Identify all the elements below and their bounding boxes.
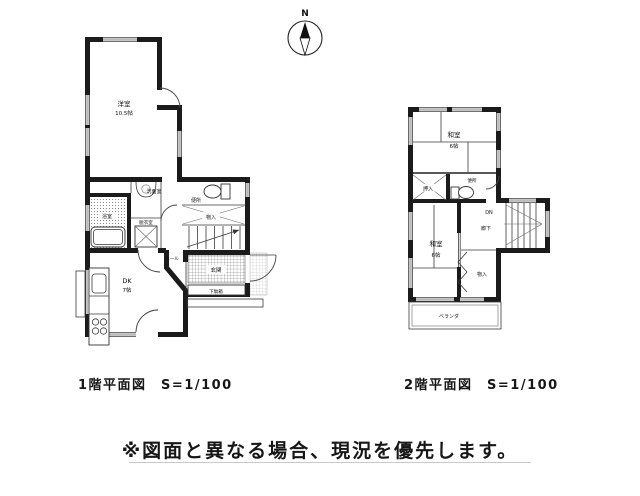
second-floor-plan: 和室 6帖 押入 便所 DN 廊下 和室 6帖 物入 ベランダ	[408, 107, 550, 329]
fixtures-2f	[409, 176, 501, 329]
compass-north-label: N	[301, 9, 309, 19]
room-label-shoe-cabinet: 下駄箱	[209, 288, 223, 295]
room-label-toilet-1f: 便所	[191, 197, 201, 204]
stairs-up-arrow	[233, 230, 240, 235]
toilet-icon	[221, 184, 230, 199]
room-label-storage-1f: 物入	[206, 214, 216, 221]
room-label-entrance: 玄関	[210, 266, 222, 274]
room-label-hall: ホール	[165, 256, 179, 262]
toilet-icon-2f	[451, 187, 459, 199]
stairs-2f	[504, 203, 542, 248]
room-label-bathroom: 浴室	[102, 213, 112, 220]
labels-2f: 和室 6帖 押入 便所 DN 廊下 和室 6帖 物入 ベランダ	[419, 130, 493, 320]
disclaimer-text: ※図面と異なる場合、現況を優先します。	[0, 436, 640, 463]
disclaimer-underline	[129, 462, 531, 463]
washing-machine-icon	[135, 226, 157, 247]
compass: N	[288, 9, 322, 55]
room-label-japanese-room-north: 和室	[448, 130, 462, 139]
room-label-dressing-room: 脱衣室	[139, 219, 153, 226]
room-size-western-room: 10.5帖	[115, 109, 133, 117]
room-label-western-room: 洋室	[118, 99, 132, 108]
caption-second-floor: 2階平面図 S=1/100	[404, 374, 559, 393]
room-label-washroom: 洗面室	[146, 188, 161, 195]
stairs-1f	[187, 226, 240, 249]
entrance-outside-step	[250, 253, 267, 295]
room-label-veranda: ベランダ	[439, 313, 459, 320]
compass-needle-south	[300, 38, 310, 55]
room-size-japanese-room-north: 6帖	[450, 142, 459, 150]
label-stairs-down: DN	[485, 210, 493, 216]
room-label-dining-kitchen: DK	[122, 277, 132, 285]
entrance-porch	[187, 299, 263, 307]
floorplan-drawing: N	[0, 0, 640, 496]
first-floor-plan: 洋室 10.5帖 洗面室 便所 浴室 脱衣室 物入 ホール 玄関 下駄箱 DK …	[76, 37, 276, 345]
room-label-storage-2f: 物入	[477, 271, 487, 278]
room-label-corridor: 廊下	[481, 225, 491, 232]
room-label-closet: 押入	[423, 186, 433, 193]
kitchen-counter	[76, 268, 109, 345]
room-size-japanese-room-south: 6帖	[432, 251, 441, 259]
caption-first-floor: 1階平面図 S=1/100	[78, 374, 233, 393]
compass-needle-north	[300, 22, 310, 38]
floorplan-page: N	[0, 0, 640, 496]
room-label-toilet-2f: 便所	[467, 177, 477, 184]
room-label-japanese-room-south: 和室	[430, 239, 444, 248]
bathtub-icon	[91, 227, 125, 247]
room-size-dining-kitchen: 7帖	[123, 286, 132, 294]
